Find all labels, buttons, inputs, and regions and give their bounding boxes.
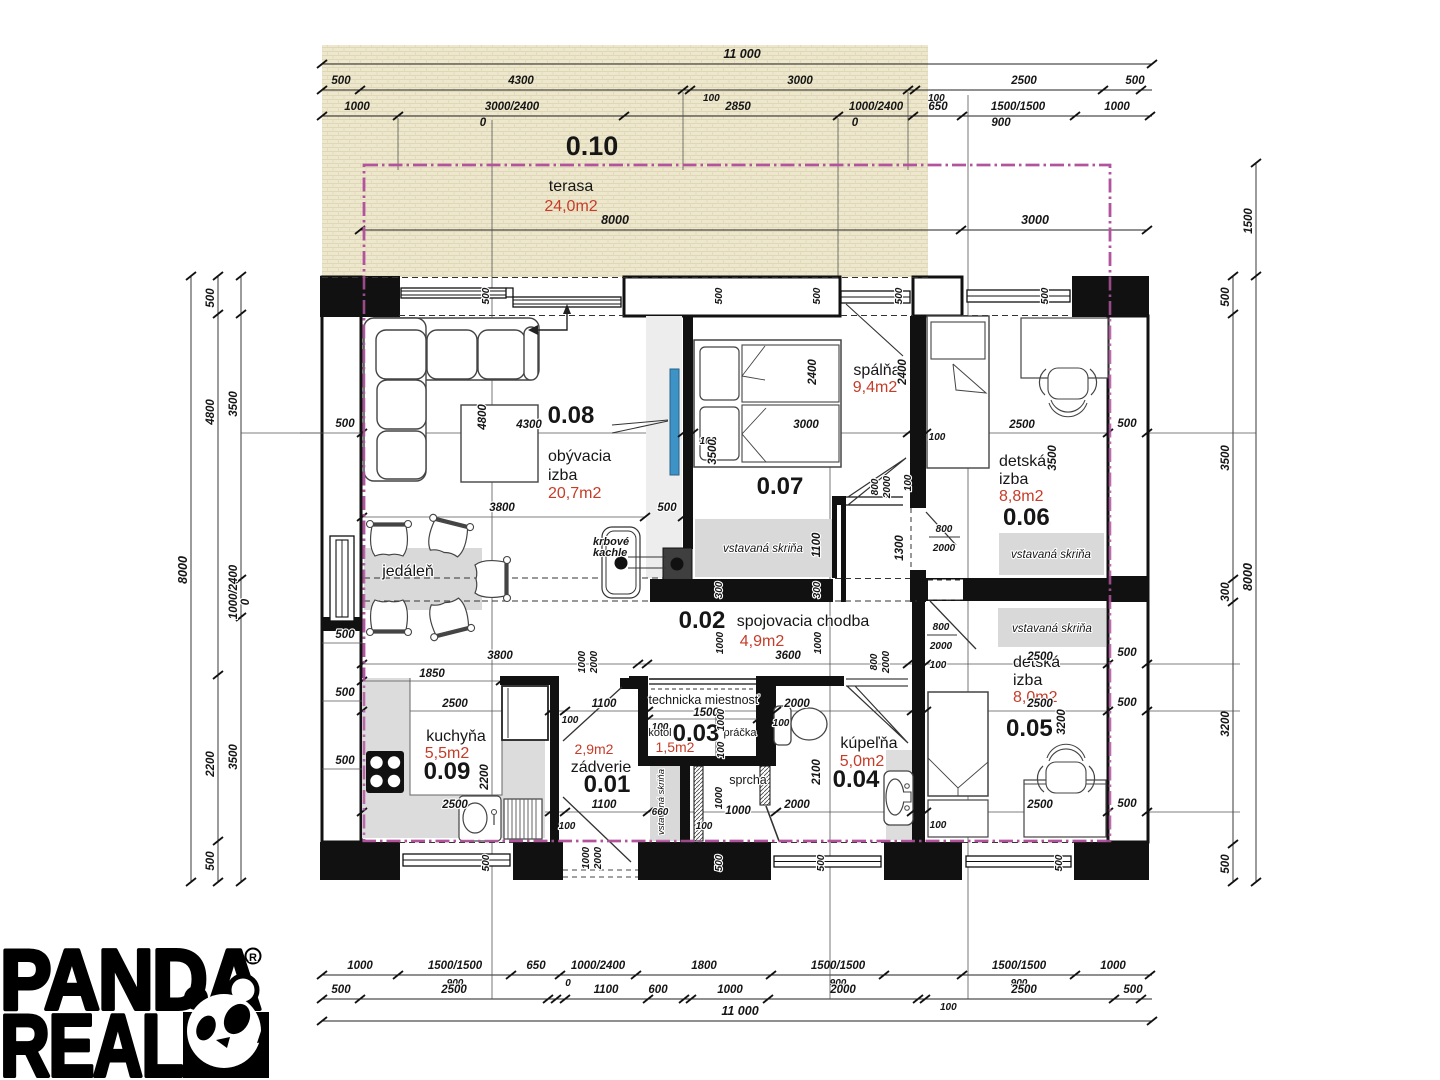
svg-text:500: 500 xyxy=(331,984,351,996)
svg-text:3500: 3500 xyxy=(228,744,240,770)
svg-text:1000: 1000 xyxy=(715,631,726,654)
svg-text:8000: 8000 xyxy=(176,556,190,584)
svg-text:1000/2400: 1000/2400 xyxy=(849,101,904,113)
svg-text:3500: 3500 xyxy=(1047,445,1059,471)
svg-text:11 000: 11 000 xyxy=(721,1004,758,1018)
svg-text:3500: 3500 xyxy=(707,439,719,465)
svg-text:900: 900 xyxy=(991,117,1011,129)
svg-text:3800: 3800 xyxy=(489,502,515,514)
svg-text:100: 100 xyxy=(930,820,947,831)
svg-text:100: 100 xyxy=(903,474,914,491)
svg-text:0.01: 0.01 xyxy=(584,771,631,798)
svg-text:spojovacia chodba: spojovacia chodba xyxy=(737,613,870,630)
svg-text:500: 500 xyxy=(205,288,217,308)
svg-text:0.10: 0.10 xyxy=(566,131,619,161)
svg-text:2200: 2200 xyxy=(205,751,217,778)
svg-text:9,4m2: 9,4m2 xyxy=(853,379,898,396)
svg-text:500: 500 xyxy=(481,854,492,871)
svg-text:100: 100 xyxy=(929,432,946,443)
svg-text:3500: 3500 xyxy=(228,391,240,417)
svg-text:2200: 2200 xyxy=(479,764,491,791)
svg-text:1000: 1000 xyxy=(725,805,751,817)
svg-text:3500: 3500 xyxy=(1220,445,1232,471)
svg-text:0.07: 0.07 xyxy=(757,473,804,500)
svg-text:4800: 4800 xyxy=(477,404,489,431)
svg-text:4300: 4300 xyxy=(507,75,534,87)
svg-text:8,8m2: 8,8m2 xyxy=(999,488,1044,505)
svg-text:4800: 4800 xyxy=(205,399,217,426)
svg-text:1800: 1800 xyxy=(691,960,717,972)
svg-text:2000: 2000 xyxy=(881,650,892,674)
svg-text:650: 650 xyxy=(526,960,546,972)
svg-text:500: 500 xyxy=(1117,647,1137,659)
svg-text:100: 100 xyxy=(562,715,579,726)
svg-text:2500: 2500 xyxy=(441,799,468,811)
svg-text:kúpeľňa: kúpeľňa xyxy=(840,735,897,752)
svg-text:spálňa: spálňa xyxy=(853,362,900,379)
svg-text:500: 500 xyxy=(1125,75,1145,87)
svg-text:500: 500 xyxy=(335,418,355,430)
svg-text:sprcha: sprcha xyxy=(729,773,767,787)
svg-text:vstavaná skriňa: vstavaná skriňa xyxy=(1011,549,1091,561)
svg-text:2500: 2500 xyxy=(1026,799,1053,811)
svg-text:detská: detská xyxy=(999,453,1046,470)
svg-text:2500: 2500 xyxy=(1008,419,1035,431)
svg-text:500: 500 xyxy=(1220,287,1232,307)
svg-text:1500: 1500 xyxy=(1243,208,1255,234)
svg-text:0: 0 xyxy=(565,978,571,989)
svg-text:1000: 1000 xyxy=(1100,960,1126,972)
svg-text:3000/2400: 3000/2400 xyxy=(485,101,540,113)
svg-text:1000: 1000 xyxy=(813,631,824,654)
svg-text:11 000: 11 000 xyxy=(723,47,760,61)
svg-text:2000: 2000 xyxy=(589,650,600,674)
svg-text:3600: 3600 xyxy=(775,650,801,662)
svg-text:2100: 2100 xyxy=(811,759,823,786)
svg-text:0.05: 0.05 xyxy=(1006,715,1053,742)
svg-text:REAL: REAL xyxy=(0,996,182,1080)
svg-text:1000: 1000 xyxy=(714,786,725,809)
svg-text:500: 500 xyxy=(894,287,905,304)
svg-text:technicka miestnosť: technicka miestnosť xyxy=(649,693,760,707)
svg-text:650: 650 xyxy=(928,101,948,113)
svg-text:1000: 1000 xyxy=(347,960,373,972)
svg-text:100: 100 xyxy=(703,93,720,104)
svg-text:2500: 2500 xyxy=(441,698,468,710)
svg-text:R: R xyxy=(249,952,257,964)
svg-text:práčka: práčka xyxy=(723,727,757,739)
svg-text:0.04: 0.04 xyxy=(833,766,880,793)
svg-text:3200: 3200 xyxy=(1056,709,1068,735)
svg-text:izba: izba xyxy=(1013,672,1042,689)
svg-text:100: 100 xyxy=(940,1002,957,1013)
svg-text:20,7m2: 20,7m2 xyxy=(548,485,601,502)
svg-text:jedáleň: jedáleň xyxy=(381,563,434,580)
svg-text:800: 800 xyxy=(936,524,953,535)
svg-text:2000: 2000 xyxy=(593,846,604,870)
svg-text:kotol: kotol xyxy=(648,727,671,739)
svg-text:500: 500 xyxy=(481,287,492,304)
svg-text:izba: izba xyxy=(999,471,1028,488)
svg-text:0.06: 0.06 xyxy=(1003,504,1050,531)
svg-text:500: 500 xyxy=(714,287,725,304)
svg-text:1100: 1100 xyxy=(594,984,619,996)
svg-text:2500: 2500 xyxy=(1010,984,1037,996)
svg-text:100: 100 xyxy=(696,821,713,832)
svg-text:660: 660 xyxy=(652,807,669,818)
svg-text:2,9m2: 2,9m2 xyxy=(575,741,614,757)
svg-text:2500: 2500 xyxy=(1026,698,1053,710)
svg-text:0: 0 xyxy=(480,117,487,129)
svg-text:1850: 1850 xyxy=(419,668,445,680)
svg-text:1000: 1000 xyxy=(717,984,743,996)
svg-text:8000: 8000 xyxy=(1241,563,1255,591)
svg-text:1500/1500: 1500/1500 xyxy=(428,960,483,972)
svg-text:100: 100 xyxy=(559,821,576,832)
svg-text:0: 0 xyxy=(852,117,859,129)
svg-text:1100: 1100 xyxy=(592,799,617,811)
svg-text:500: 500 xyxy=(1220,854,1232,874)
svg-text:500: 500 xyxy=(1123,984,1143,996)
svg-text:1000: 1000 xyxy=(1104,101,1130,113)
svg-text:8000: 8000 xyxy=(601,213,629,227)
svg-text:500: 500 xyxy=(1117,418,1137,430)
svg-text:3000: 3000 xyxy=(1021,213,1049,227)
svg-text:100: 100 xyxy=(716,741,727,758)
svg-text:100: 100 xyxy=(773,718,790,729)
svg-text:izba: izba xyxy=(548,467,577,484)
svg-text:0.08: 0.08 xyxy=(548,402,595,429)
svg-text:2850: 2850 xyxy=(724,101,751,113)
svg-text:terasa: terasa xyxy=(549,178,594,195)
svg-text:500: 500 xyxy=(335,629,355,641)
svg-text:500: 500 xyxy=(205,851,217,871)
svg-text:500: 500 xyxy=(331,75,351,87)
svg-text:2000: 2000 xyxy=(829,984,856,996)
svg-text:2000: 2000 xyxy=(783,698,810,710)
svg-text:1000: 1000 xyxy=(716,708,727,731)
svg-text:1000: 1000 xyxy=(344,101,370,113)
svg-text:300: 300 xyxy=(812,581,823,598)
svg-text:1100: 1100 xyxy=(811,532,823,557)
svg-text:1100: 1100 xyxy=(592,698,617,710)
svg-text:2500: 2500 xyxy=(1010,75,1037,87)
svg-text:1000/2400: 1000/2400 xyxy=(228,564,240,619)
svg-text:800: 800 xyxy=(933,622,950,633)
svg-text:3000: 3000 xyxy=(787,75,813,87)
svg-text:300: 300 xyxy=(1220,582,1232,602)
svg-text:800: 800 xyxy=(869,653,880,670)
svg-text:2000: 2000 xyxy=(932,543,956,554)
svg-text:3800: 3800 xyxy=(487,650,513,662)
svg-text:0.02: 0.02 xyxy=(679,607,726,634)
svg-text:600: 600 xyxy=(648,984,668,996)
svg-text:500: 500 xyxy=(1117,798,1137,810)
svg-text:800: 800 xyxy=(870,478,881,495)
svg-text:500: 500 xyxy=(714,854,725,871)
svg-text:4300: 4300 xyxy=(515,419,542,431)
svg-text:1500/1500: 1500/1500 xyxy=(811,960,866,972)
svg-text:500: 500 xyxy=(1117,697,1137,709)
svg-text:2400: 2400 xyxy=(897,359,909,386)
svg-text:500: 500 xyxy=(816,854,827,871)
svg-text:500: 500 xyxy=(1054,854,1065,871)
svg-text:2500: 2500 xyxy=(1026,651,1053,663)
svg-text:300: 300 xyxy=(714,581,725,598)
svg-text:1500/1500: 1500/1500 xyxy=(991,101,1046,113)
svg-text:100: 100 xyxy=(930,660,947,671)
svg-text:1300: 1300 xyxy=(894,535,906,561)
svg-text:1,5m2: 1,5m2 xyxy=(656,739,695,755)
svg-text:kachle: kachle xyxy=(593,547,627,559)
svg-text:1500/1500: 1500/1500 xyxy=(992,960,1047,972)
svg-text:2000: 2000 xyxy=(783,799,810,811)
svg-text:2400: 2400 xyxy=(807,359,819,386)
svg-text:0: 0 xyxy=(240,598,252,605)
svg-text:500: 500 xyxy=(1040,287,1051,304)
svg-text:4,9m2: 4,9m2 xyxy=(740,633,785,650)
svg-text:2500: 2500 xyxy=(440,984,467,996)
svg-text:kuchyňa: kuchyňa xyxy=(426,728,486,745)
svg-text:0.09: 0.09 xyxy=(424,758,471,785)
svg-text:1000: 1000 xyxy=(577,650,588,673)
svg-text:obývacia: obývacia xyxy=(548,448,611,465)
svg-text:24,0m2: 24,0m2 xyxy=(544,198,597,215)
svg-text:vstavaná skriňa: vstavaná skriňa xyxy=(723,543,803,555)
svg-text:3200: 3200 xyxy=(1220,711,1232,737)
svg-text:2000: 2000 xyxy=(882,475,893,499)
svg-text:500: 500 xyxy=(657,502,677,514)
svg-text:3000: 3000 xyxy=(793,419,819,431)
svg-text:1000: 1000 xyxy=(581,846,592,869)
svg-text:vstavaná skriňa: vstavaná skriňa xyxy=(1012,623,1092,635)
svg-text:500: 500 xyxy=(335,687,355,699)
svg-text:vstavaná skriňa: vstavaná skriňa xyxy=(656,769,667,835)
svg-text:500: 500 xyxy=(812,287,823,304)
svg-text:1000/2400: 1000/2400 xyxy=(571,960,626,972)
svg-text:2000: 2000 xyxy=(929,641,953,652)
svg-text:500: 500 xyxy=(335,755,355,767)
